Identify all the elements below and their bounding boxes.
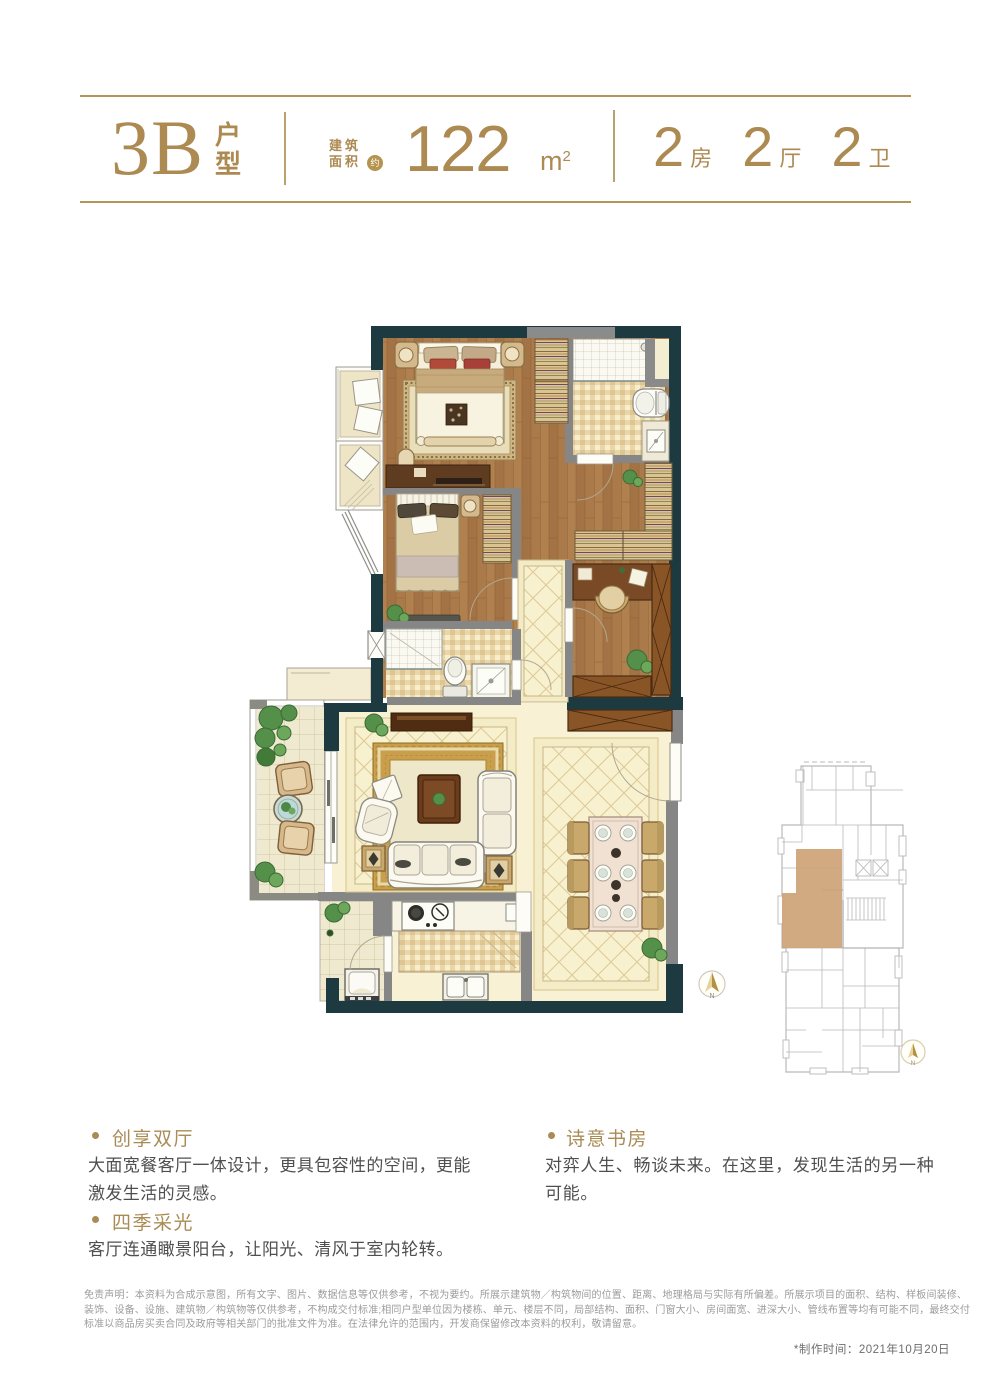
svg-text:N: N: [709, 993, 714, 1000]
svg-text:N: N: [911, 1060, 916, 1067]
